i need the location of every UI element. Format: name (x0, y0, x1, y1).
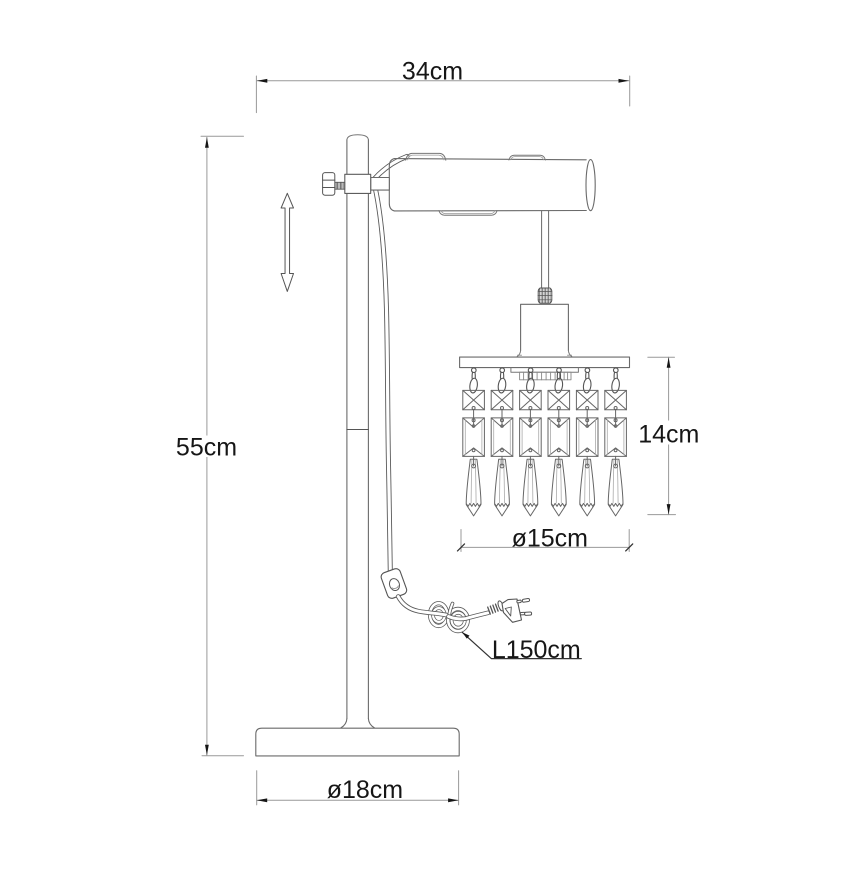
svg-text:14cm: 14cm (638, 420, 699, 448)
svg-text:34cm: 34cm (402, 57, 463, 85)
svg-text:ø15cm: ø15cm (512, 524, 588, 552)
svg-text:L150cm: L150cm (492, 636, 581, 664)
svg-text:ø18cm: ø18cm (327, 776, 403, 804)
svg-text:55cm: 55cm (176, 434, 237, 462)
